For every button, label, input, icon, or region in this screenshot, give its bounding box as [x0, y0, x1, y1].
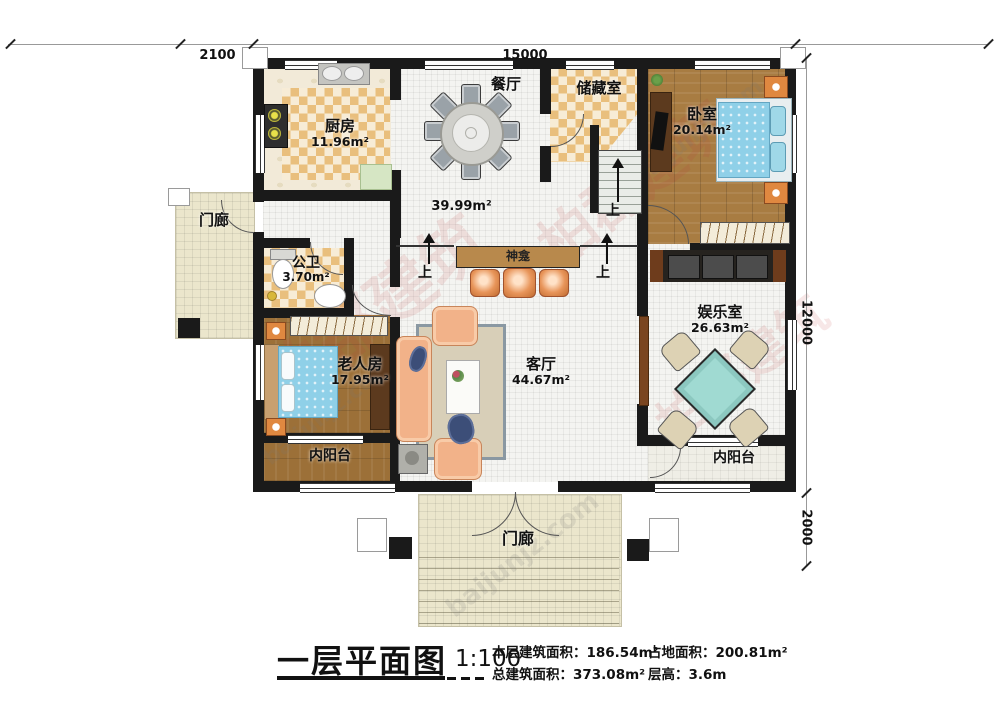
- stat-label: 总建筑面积：: [492, 667, 573, 683]
- up-label-right: 上: [596, 262, 610, 282]
- step-line: [580, 245, 638, 247]
- hall-area-label: 39.99m²: [424, 200, 499, 215]
- room-area: 11.96m²: [295, 135, 385, 149]
- room-label-entertainment: 娱乐室 26.63m²: [682, 304, 758, 336]
- room-name: 老人房: [322, 356, 398, 373]
- step-arrow-head: [423, 233, 435, 243]
- stairs-arrow: [617, 168, 619, 202]
- side-table-top: [405, 451, 419, 465]
- room-label-living: 客厅 44.67m²: [505, 356, 577, 388]
- room-area: 26.63m²: [682, 321, 758, 335]
- bath-accessory: [267, 291, 277, 301]
- room-label-dining: 餐厅: [478, 76, 534, 93]
- shrine-cushion: [470, 269, 500, 297]
- sliding-door-panel: [639, 316, 649, 406]
- bed-pillow: [770, 106, 786, 136]
- dim-label-15000: 15000: [490, 48, 560, 63]
- wall-living-ent-a: [637, 254, 648, 316]
- column-outline: [649, 518, 679, 552]
- window: [566, 60, 614, 70]
- coffee-table: [446, 360, 480, 414]
- room-area: 20.14m²: [666, 123, 738, 137]
- kitchen-mat: [360, 164, 392, 190]
- room-area: 39.99m²: [424, 200, 499, 215]
- up-label-left: 上: [418, 262, 432, 282]
- dim-label-12000: 12000: [799, 298, 814, 348]
- room-name: 内阳台: [296, 448, 364, 464]
- room-area: 3.70m²: [278, 271, 334, 285]
- room-name: 内阳台: [700, 450, 768, 466]
- room-label-storage: 储藏室: [564, 80, 634, 97]
- dining-table-center: [465, 127, 477, 139]
- stat-total-area: 总建筑面积：373.08m²: [492, 663, 645, 683]
- elder-wardrobe: [290, 316, 388, 336]
- room-name: 门廊: [186, 212, 242, 229]
- tv-screen: [736, 255, 768, 279]
- table-flowers: [452, 370, 464, 382]
- shrine-label: 神龛: [506, 249, 530, 263]
- room-label-kitchen: 厨房 11.96m²: [295, 118, 385, 150]
- bedroom-wardrobe: [700, 222, 790, 244]
- stat-label: 占地面积：: [648, 645, 716, 661]
- elder-bed-pillow: [281, 352, 295, 380]
- room-area: 44.67m²: [505, 373, 577, 387]
- column: [178, 318, 200, 338]
- dim-label-2100: 2100: [190, 48, 245, 63]
- bath-sink: [314, 284, 346, 308]
- room-label-bedroom: 卧室 20.14m²: [666, 106, 738, 138]
- tv-screen: [668, 255, 700, 279]
- porch-steps: [419, 548, 619, 624]
- shrine-cushion: [539, 269, 569, 297]
- stat-value: 3.6m: [689, 667, 727, 683]
- column-outline: [168, 188, 190, 206]
- stairs-up-label: 上: [606, 200, 620, 220]
- floorplan-page: 柏郡建筑 柏郡建筑 柏郡建筑 baijunjz.com baijunjz.com…: [0, 0, 1000, 706]
- plant: [651, 74, 663, 86]
- room-label-balcony-left: 内阳台: [296, 448, 364, 464]
- dim-line-top: [8, 44, 988, 45]
- wall-kitchen-right-a: [390, 58, 401, 100]
- stat-label: 本层建筑面积：: [492, 645, 587, 661]
- room-name: 门廊: [486, 530, 550, 548]
- stat-value: 200.81m²: [716, 645, 788, 661]
- stove-burner: [268, 127, 281, 140]
- stat-value: 373.08m²: [573, 667, 645, 683]
- room-name: 厨房: [295, 118, 385, 135]
- stat-land-area: 占地面积：200.81m²: [648, 641, 788, 661]
- wall-bath-right: [344, 238, 354, 318]
- room-label-balcony-right: 内阳台: [700, 450, 768, 466]
- room-name: 餐厅: [478, 76, 534, 93]
- tv-screen: [702, 255, 734, 279]
- column-outline: [780, 47, 806, 69]
- step-arrow-head: [601, 233, 613, 243]
- window: [288, 435, 363, 444]
- wall-kitchen-bottom: [263, 190, 390, 201]
- elder-bed-pillow: [281, 384, 295, 412]
- dim-label-2000: 2000: [799, 505, 814, 551]
- room-name: 卧室: [666, 106, 738, 123]
- room-label-elder: 老人房 17.95m²: [322, 356, 398, 388]
- armchair: [432, 306, 478, 346]
- stove-burner: [268, 109, 281, 122]
- tv-cabinet-end: [650, 250, 663, 282]
- room-name: 娱乐室: [682, 304, 758, 321]
- title-underline-dashes: [447, 677, 487, 680]
- stat-floor-height: 层高：3.6m: [648, 663, 726, 683]
- room-name: 公卫: [278, 255, 334, 271]
- wall-storage-left-a: [540, 58, 551, 114]
- bed-pillow: [770, 142, 786, 172]
- room-name: 客厅: [505, 356, 577, 373]
- nightstand-lamp: [266, 322, 286, 340]
- tv-cabinet-end: [773, 250, 786, 282]
- step-arrow: [606, 242, 608, 264]
- window: [255, 345, 265, 400]
- column-outline: [242, 47, 268, 69]
- stat-label: 层高：: [648, 667, 689, 683]
- stat-floor-area: 本层建筑面积：186.54m²: [492, 641, 659, 661]
- nightstand-lamp: [266, 418, 286, 436]
- room-name: 储藏室: [564, 80, 634, 97]
- shrine-cushion: [503, 268, 536, 298]
- room-label-porch-left: 门廊: [186, 212, 242, 229]
- room-area: 17.95m²: [322, 373, 398, 387]
- title-underline: [277, 676, 445, 680]
- step-arrow: [428, 242, 430, 264]
- kitchen-sink-basin: [322, 66, 342, 81]
- column-outline: [357, 518, 387, 552]
- stairs-arrow-head: [612, 158, 624, 168]
- window: [787, 320, 797, 390]
- room-label-porch-bottom: 门廊: [486, 530, 550, 548]
- window: [255, 115, 265, 173]
- armchair: [434, 438, 482, 480]
- nightstand-lamp: [764, 76, 788, 98]
- column: [389, 537, 412, 559]
- window: [655, 483, 750, 493]
- wall-bath-top-a: [263, 238, 310, 248]
- step-line: [396, 245, 454, 247]
- column: [627, 539, 649, 561]
- wall-storage-left-b: [540, 146, 551, 182]
- room-label-bath: 公卫 3.70m²: [278, 255, 334, 285]
- window: [695, 60, 770, 70]
- window: [300, 483, 395, 493]
- kitchen-sink-basin: [344, 66, 364, 81]
- nightstand-lamp: [764, 182, 788, 204]
- shrine-table: 神龛: [456, 246, 580, 268]
